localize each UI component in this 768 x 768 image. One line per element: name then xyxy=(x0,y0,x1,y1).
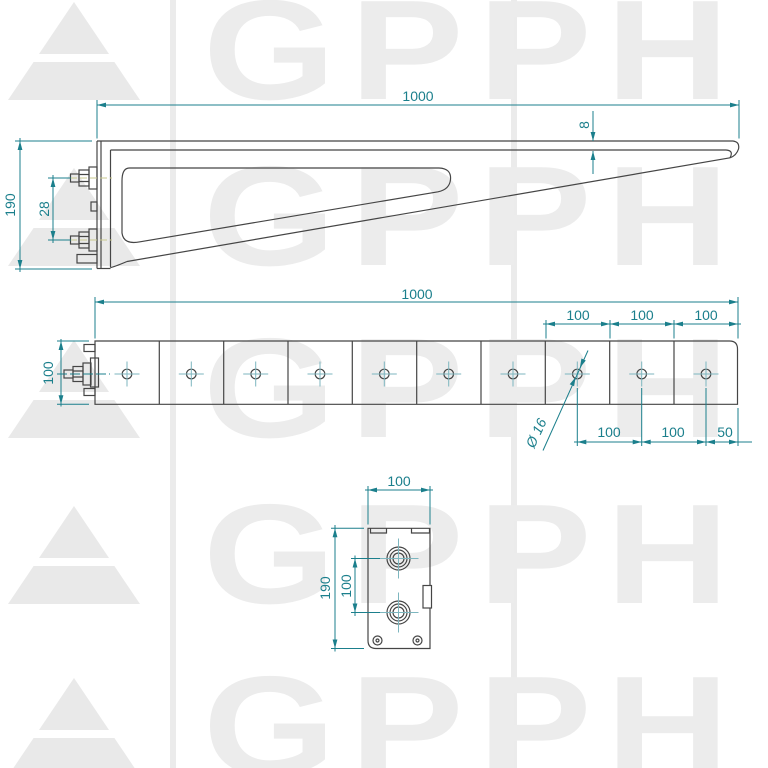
side-bolt-centerlines xyxy=(60,178,112,240)
plan-hole-pitch-dim-label: 100 xyxy=(584,424,634,440)
side-length-dim-label: 1000 xyxy=(393,88,443,104)
drawing-geometry xyxy=(0,0,768,768)
plan-hole-pitch-dim-label: 50 xyxy=(700,424,750,440)
front-height-dim-label: 190 xyxy=(317,563,333,613)
plan-width-dim-label: 100 xyxy=(40,348,56,398)
plan-length-dim-label: 1000 xyxy=(392,286,442,302)
side-height-dim-label: 190 xyxy=(2,180,18,230)
technical-drawing-page: GPPH GPPH GPPH GPPH xyxy=(0,0,768,768)
plan-segment-dim-label: 100 xyxy=(681,307,731,323)
side-bolt-spacing-dim-label: 28 xyxy=(36,184,52,234)
front-width-dim-label: 100 xyxy=(374,473,424,489)
front-view xyxy=(368,528,432,648)
plan-segment-dim-label: 100 xyxy=(553,307,603,323)
front-bolt-crosshairs xyxy=(379,539,419,633)
dimension-arrowheads xyxy=(18,103,739,649)
side-plate-thickness-dim-label: 8 xyxy=(576,100,592,150)
plan-hole-pitch-dim-label: 100 xyxy=(648,424,698,440)
plan-segment-dim-label: 100 xyxy=(617,307,667,323)
side-view xyxy=(71,141,739,269)
front-bolt-pitch-dim-label: 100 xyxy=(338,561,354,611)
plan-view xyxy=(64,341,738,404)
